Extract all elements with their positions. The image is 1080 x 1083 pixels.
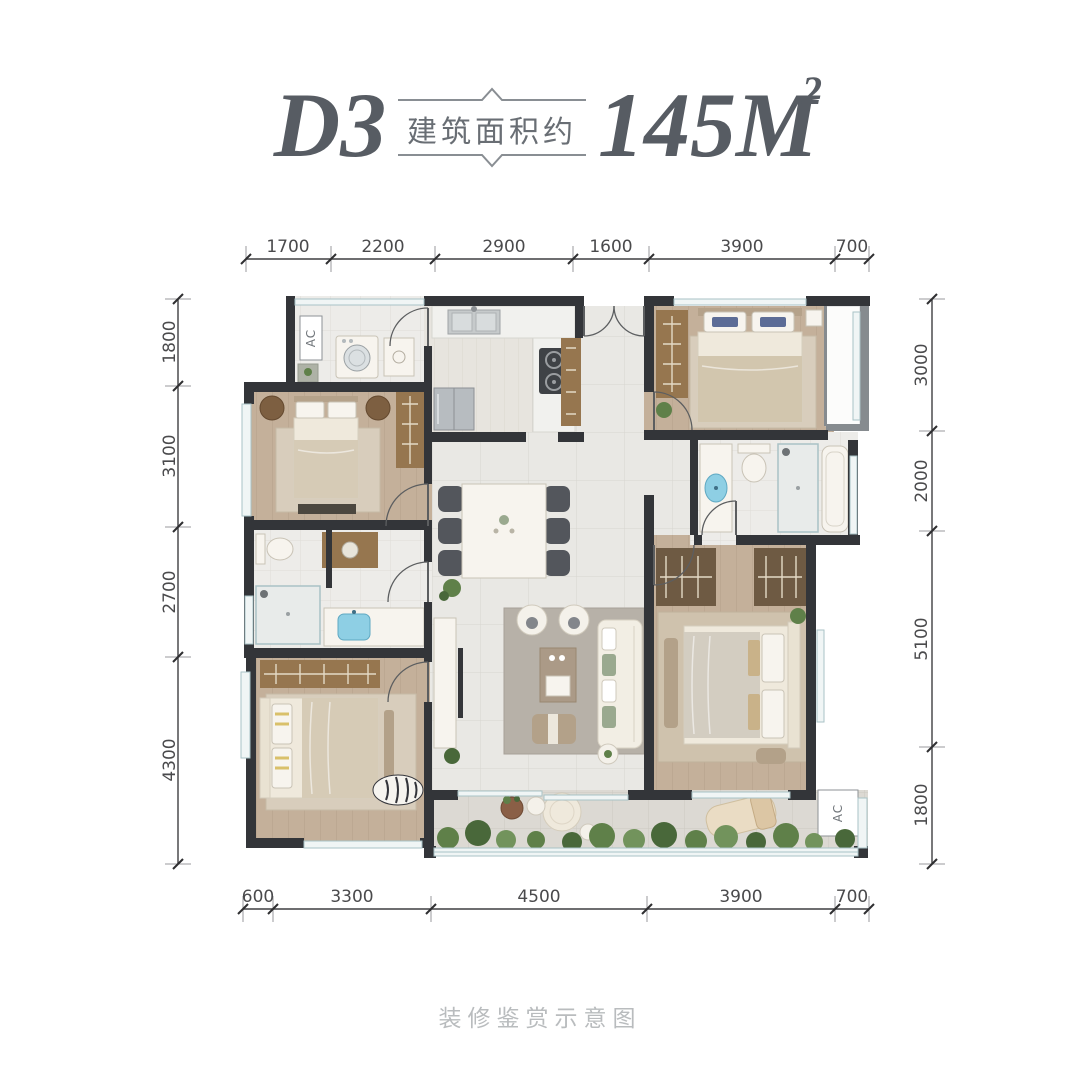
dim-left-1: 1800 <box>160 320 180 363</box>
bedroom3-bed <box>260 698 378 798</box>
area-label: 建筑面积约 <box>407 115 577 150</box>
dining-chair <box>544 518 570 544</box>
dim-left-2: 3100 <box>160 434 180 477</box>
master-side-window <box>817 630 824 722</box>
sink-basin <box>338 614 370 640</box>
stool <box>756 748 786 764</box>
bathtub <box>822 446 848 532</box>
shoe-cabinet <box>561 338 581 426</box>
centerpiece <box>499 515 509 525</box>
dining-area <box>438 484 570 578</box>
bracket-bottom-line <box>398 155 586 166</box>
bedroom1-window <box>674 299 806 305</box>
bedroom3-bottom-window <box>304 841 422 848</box>
plant-icon <box>790 608 806 624</box>
dim-bottom-4: 3900 <box>719 887 762 907</box>
plant-icon <box>444 748 460 764</box>
ac-label-top: AC <box>304 329 318 347</box>
side-table <box>598 744 618 764</box>
dining-chair <box>544 486 570 512</box>
zebra-rug <box>373 775 423 805</box>
tv <box>458 648 463 718</box>
dim-right-2: 2000 <box>912 459 932 502</box>
dining-table <box>462 484 546 578</box>
bathroom-left-window <box>245 596 253 644</box>
tv-console <box>434 618 456 748</box>
dim-left-3: 2700 <box>160 570 180 613</box>
basin <box>342 542 358 558</box>
sofa <box>598 620 642 748</box>
dimension-left: 1800 3100 2700 4300 <box>160 294 191 869</box>
entry-floor <box>575 306 654 440</box>
master-balcony-window <box>692 792 790 798</box>
shower <box>256 586 320 644</box>
master-bed <box>684 622 800 748</box>
dim-bottom-1: 600 <box>242 887 274 907</box>
area-value: 145M <box>598 74 821 176</box>
ottoman <box>532 714 576 744</box>
area-exponent: 2 <box>801 68 822 113</box>
dim-top-2: 2200 <box>361 237 404 257</box>
dim-right-3: 5100 <box>912 617 932 660</box>
coffee-table <box>540 648 576 702</box>
utility-sink <box>384 338 414 376</box>
dim-right-1: 3000 <box>912 343 932 386</box>
nightstand <box>806 310 822 326</box>
dim-bottom-2: 3300 <box>330 887 373 907</box>
dim-top-3: 2900 <box>482 237 525 257</box>
entry <box>561 338 581 426</box>
bay-window <box>853 312 860 420</box>
bed-bench <box>664 638 678 728</box>
bedroom2-bay-window <box>242 404 251 516</box>
title-block: D3 建筑面积约 145M 2 <box>273 68 822 176</box>
armchair <box>559 605 589 635</box>
shower <box>778 444 818 532</box>
dim-left-4: 4300 <box>160 738 180 781</box>
dim-right-4: 1800 <box>912 783 932 826</box>
unit-name: D3 <box>273 74 386 176</box>
sliding-door-panel <box>458 791 542 796</box>
ac-label-bottom: AC <box>831 804 845 822</box>
dimension-right: 3000 2000 5100 1800 <box>912 294 945 869</box>
dim-top-6: 700 <box>836 237 868 257</box>
plant-icon <box>656 402 672 418</box>
floorplan-page: D3 建筑面积约 145M 2 AC <box>0 0 1080 1083</box>
laundry-window <box>295 299 424 305</box>
caption: 装修鉴赏示意图 <box>439 1006 642 1032</box>
dining-chair <box>438 486 464 512</box>
dimension-top: 1700 2200 2900 1600 3900 700 <box>241 237 874 272</box>
washing-machine <box>336 336 378 378</box>
dining-chair <box>438 550 464 576</box>
floorplan-drawing: D3 建筑面积约 145M 2 AC <box>0 0 1080 1083</box>
round-chair <box>260 396 284 420</box>
dim-top-5: 3900 <box>720 237 763 257</box>
armchair <box>517 605 547 635</box>
balcony-side-glass <box>858 798 867 848</box>
plant-icon <box>304 368 312 376</box>
dim-bottom-3: 4500 <box>517 887 560 907</box>
bedroom3-bay-window <box>241 672 250 758</box>
bathroom-right-window <box>850 456 857 534</box>
bracket-top-line <box>398 89 586 100</box>
dining-chair <box>544 550 570 576</box>
kitchen-sink <box>448 306 500 334</box>
round-chair <box>366 396 390 420</box>
dining-chair <box>438 518 464 544</box>
dim-top-4: 1600 <box>589 237 632 257</box>
dim-top-1: 1700 <box>266 237 309 257</box>
dim-bottom-5: 700 <box>836 887 868 907</box>
bed-end-dresser <box>298 504 356 514</box>
bed-bench <box>384 710 394 786</box>
refrigerator <box>434 388 474 430</box>
dimension-bottom: 600 3300 4500 3900 700 <box>238 887 874 922</box>
sliding-door-panel <box>544 795 628 800</box>
